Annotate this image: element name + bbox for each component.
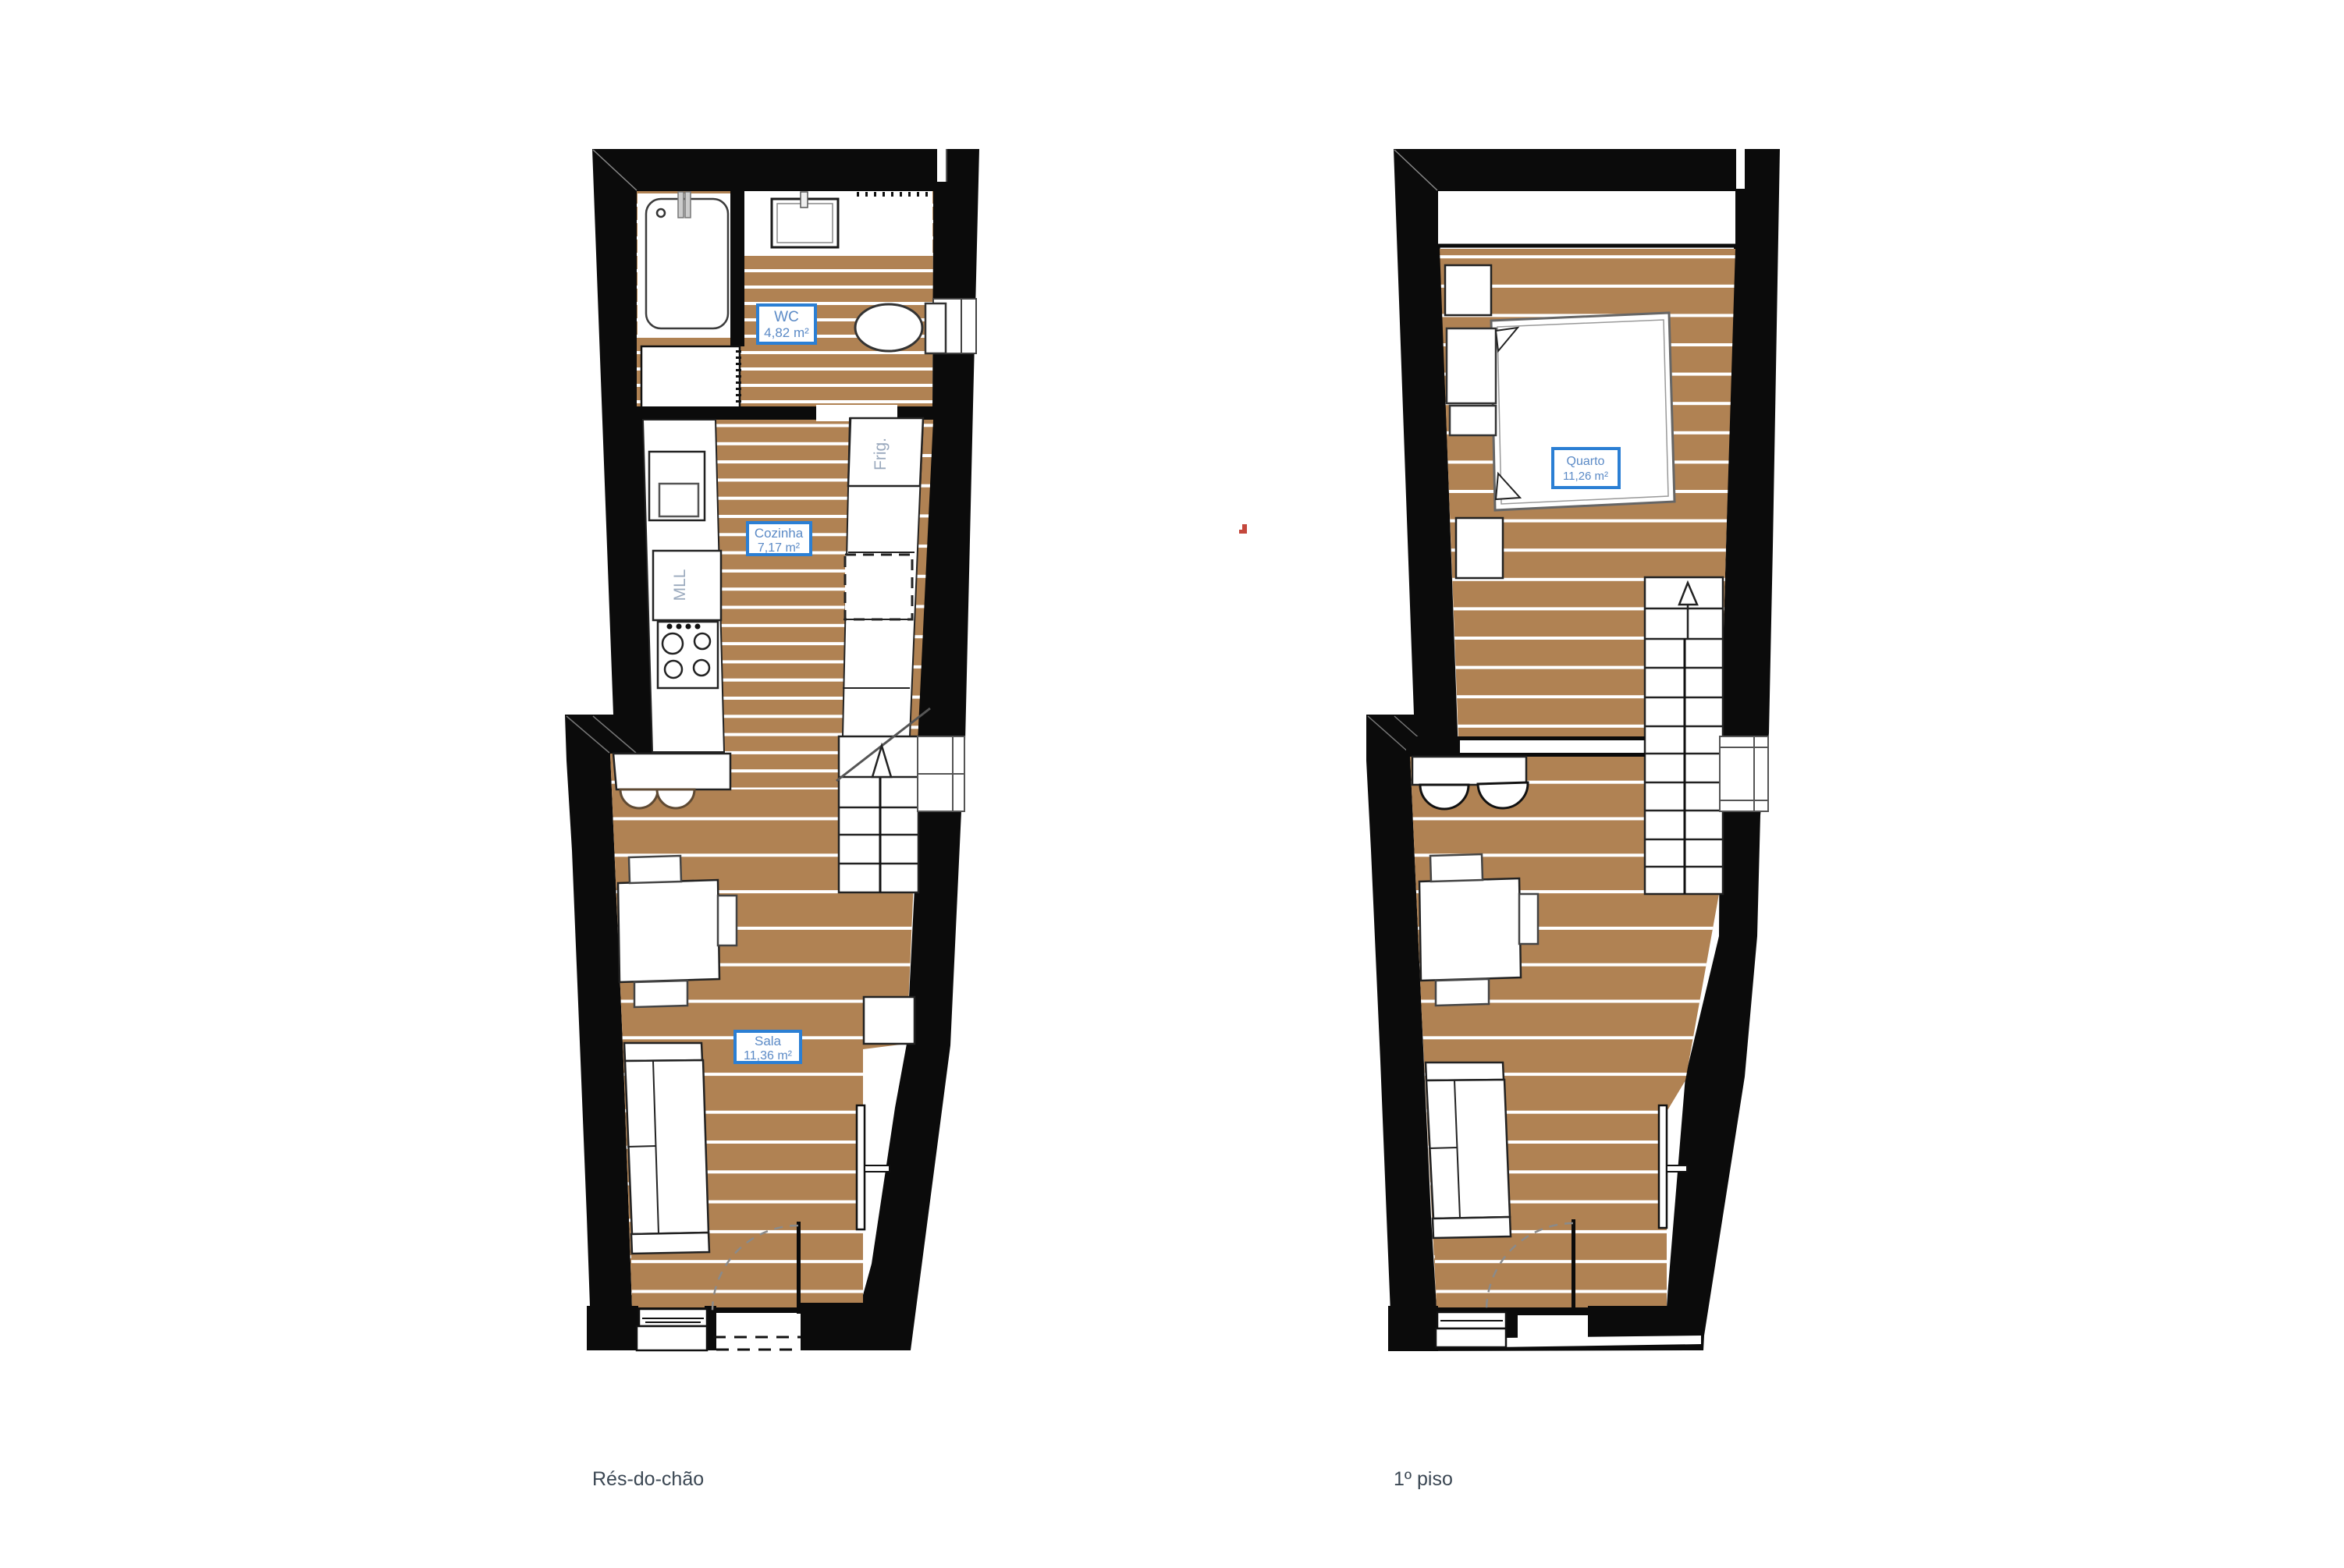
svg-text:Rés-do-chão: Rés-do-chão	[592, 1468, 704, 1490]
svg-text:7,17 m²: 7,17 m²	[758, 541, 801, 555]
svg-text:Sala: Sala	[755, 1034, 782, 1048]
svg-text:4,82 m²: 4,82 m²	[764, 325, 809, 340]
svg-text:WC: WC	[774, 309, 799, 325]
svg-text:Quarto: Quarto	[1567, 455, 1605, 468]
svg-text:11,26 m²: 11,26 m²	[1563, 470, 1608, 483]
svg-text:Frig.: Frig.	[872, 438, 890, 470]
svg-text:11,36 m²: 11,36 m²	[744, 1049, 793, 1062]
svg-text:Cozinha: Cozinha	[755, 526, 804, 541]
svg-text:1º piso: 1º piso	[1394, 1468, 1453, 1490]
svg-text:MLL: MLL	[671, 569, 689, 601]
